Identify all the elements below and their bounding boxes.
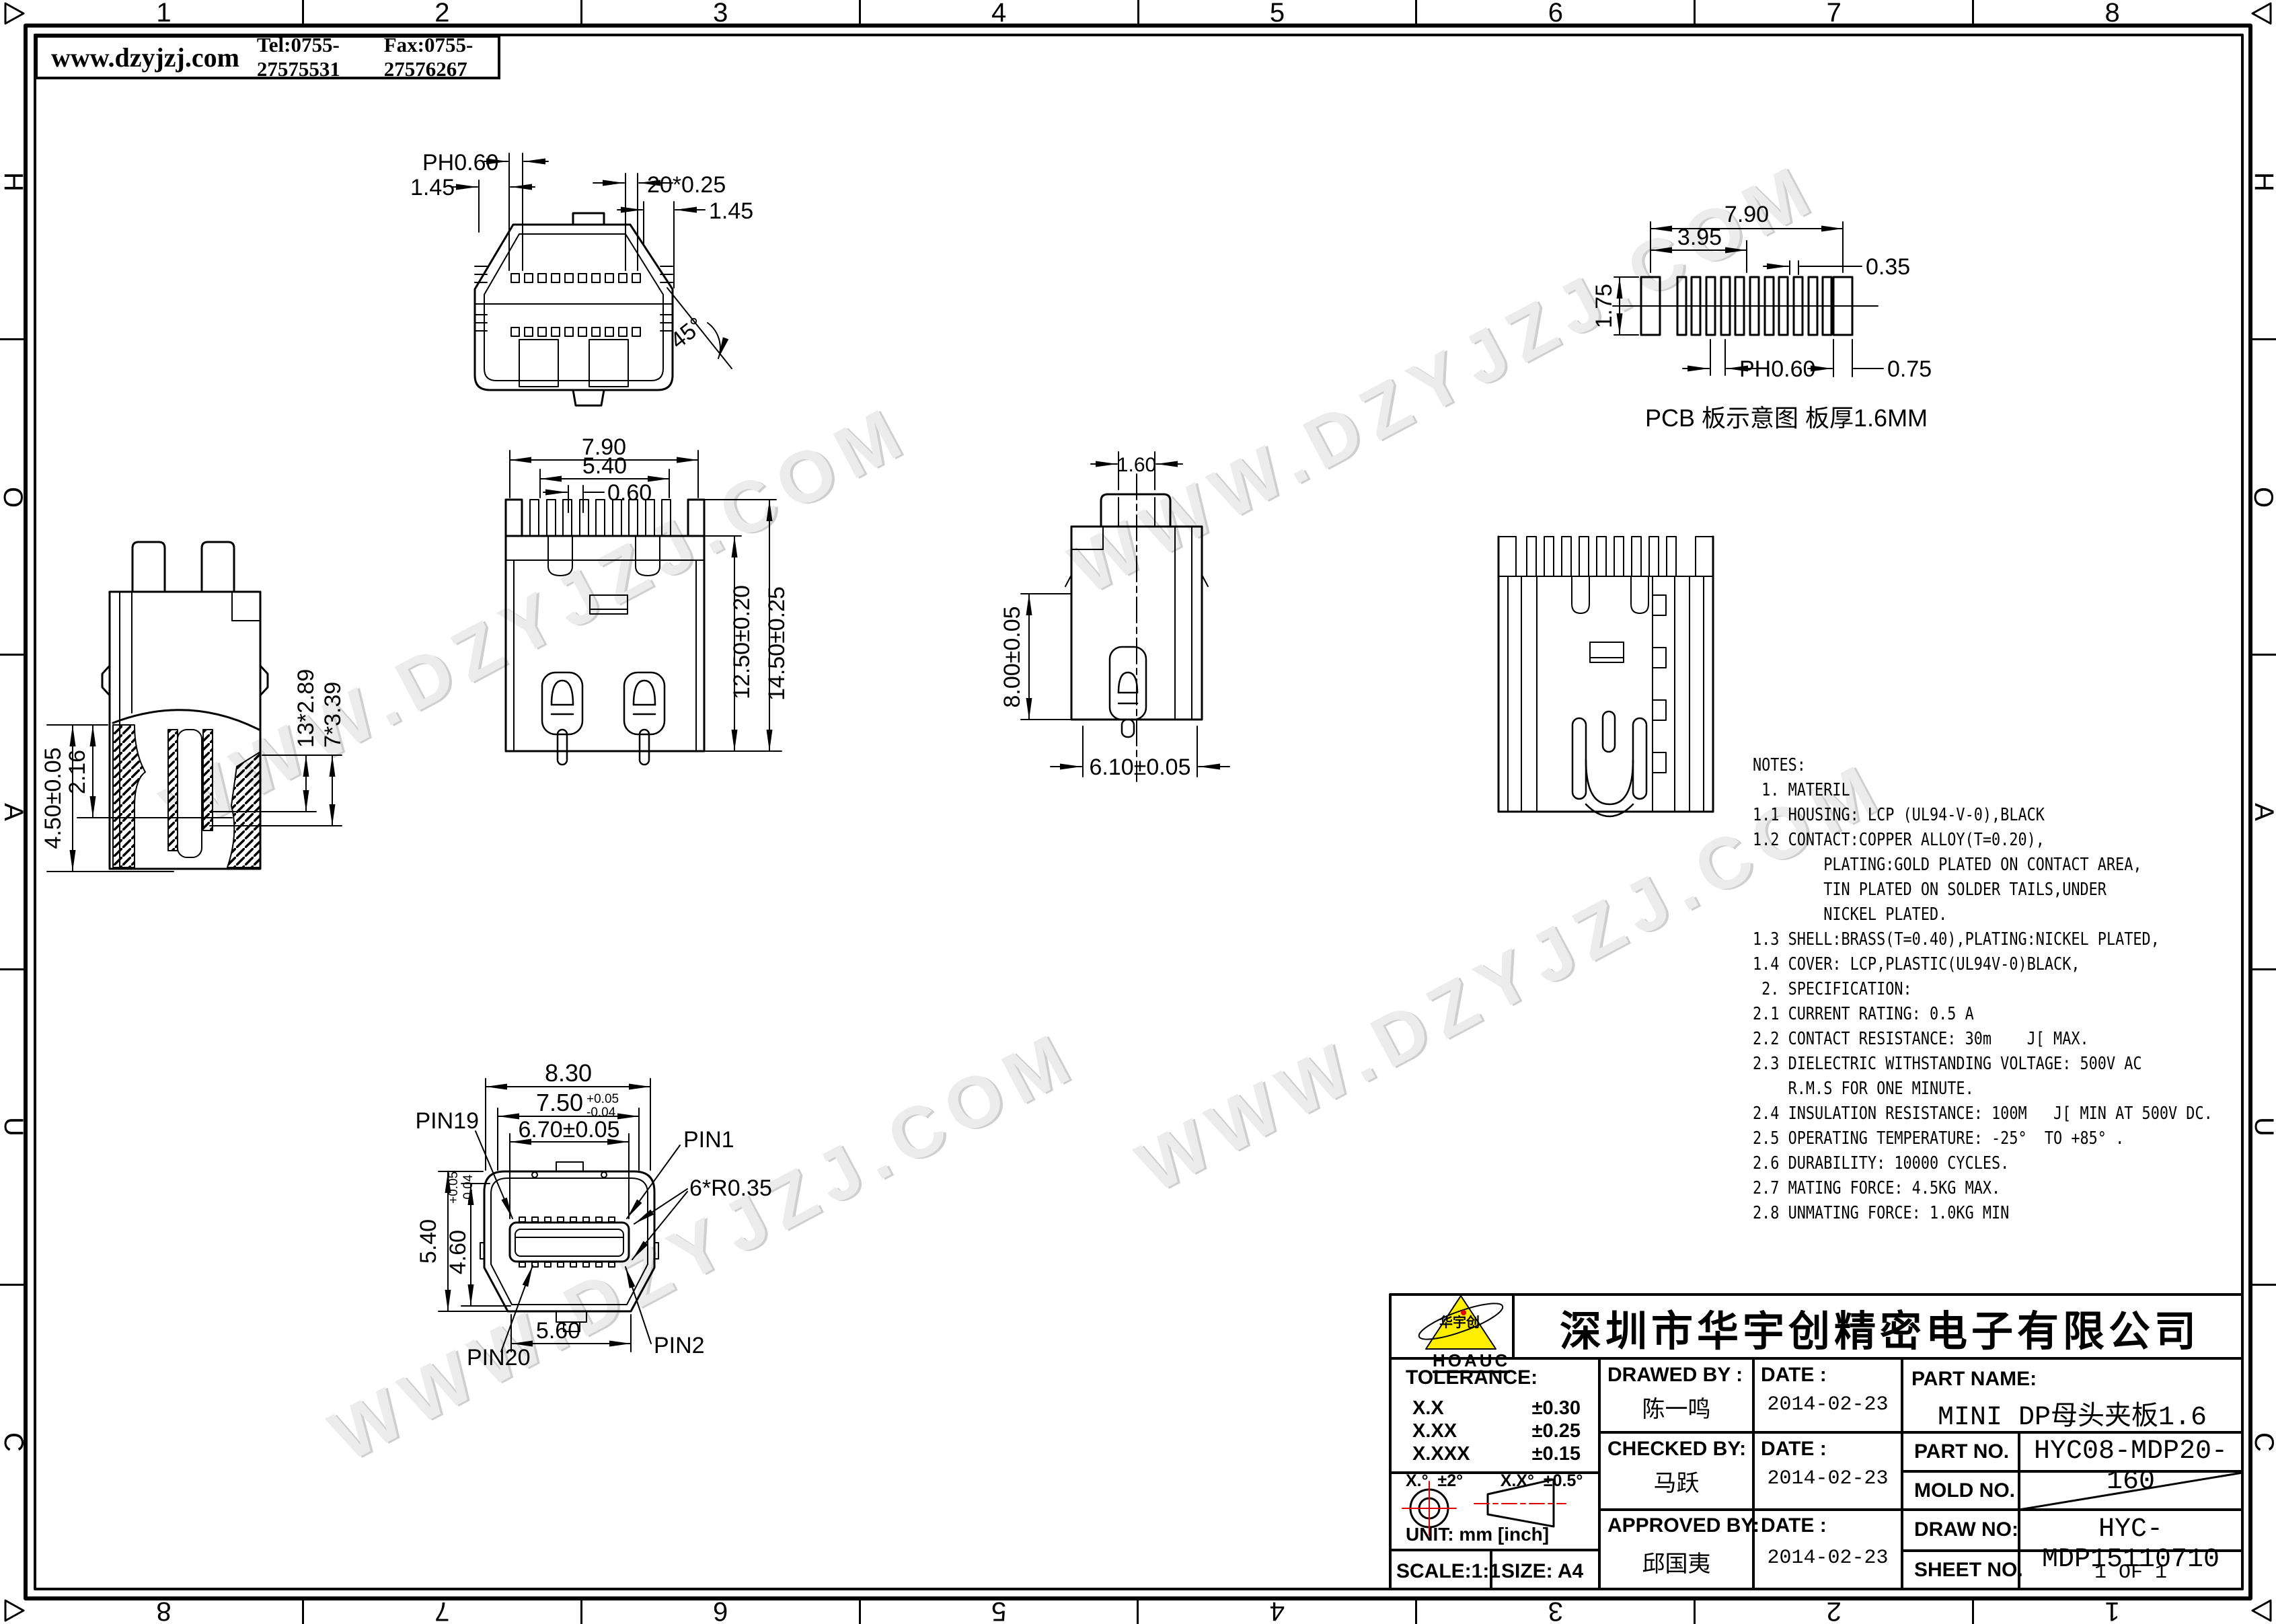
date-value: 2014-02-23 <box>1753 1393 1902 1416</box>
drawed-by-value: 陈一鸣 <box>1599 1391 1753 1424</box>
dim-label: 5.60 <box>536 1318 580 1344</box>
pcb-caption: PCB 板示意图 板厚1.6MM <box>1645 404 1928 432</box>
tol-key: X.XXX <box>1412 1443 1470 1465</box>
logo-text: 华宇创 <box>1439 1311 1480 1331</box>
dim-label: 8.30 <box>545 1059 592 1087</box>
view-pcb <box>1613 222 1883 377</box>
dim-label: 2.16 <box>65 750 90 794</box>
fax-text: Fax:0755-27576267 <box>384 33 498 81</box>
corner-mark-icon <box>2252 1600 2271 1621</box>
tol-val: ±0.30 <box>1532 1397 1581 1420</box>
dim-label: 20*0.25 <box>647 172 726 198</box>
sheet-no-value: 1 OF 1 <box>2019 1561 2242 1584</box>
side-right-dims <box>1021 452 1229 777</box>
part-name-label: PART NAME: <box>1911 1368 2037 1391</box>
tolerance-row: X.X ±0.30 <box>1412 1397 1581 1420</box>
dim-label: 4.60 <box>445 1230 471 1274</box>
checked-by-label: CHECKED BY: <box>1607 1438 1746 1461</box>
size-label: SIZE: A4 <box>1501 1560 1583 1583</box>
dim-label: 5.40 <box>416 1219 441 1264</box>
scale-label: SCALE:1:1 <box>1396 1560 1501 1583</box>
tol-key: X.X <box>1412 1397 1444 1420</box>
date-label: DATE : <box>1761 1514 1827 1537</box>
face-serrations <box>519 1217 615 1267</box>
face-leaders <box>476 1131 687 1352</box>
dim-label: 0.60 <box>607 480 652 506</box>
draw-no-label: DRAW NO: <box>1914 1518 2018 1541</box>
dim-label: 12.50±0.20 <box>729 585 755 699</box>
corner-mark-icon <box>5 3 24 24</box>
pin-label: PIN19 <box>416 1108 480 1134</box>
dim-label: PH0.60 <box>1739 356 1815 382</box>
dim-tolerance: +0.05 <box>586 1092 619 1106</box>
dim-label: 7.50 <box>536 1089 583 1116</box>
dim-label: 4.50±0.05 <box>40 747 66 849</box>
corner-mark-icon <box>5 1600 24 1621</box>
dim-label: 1.60 <box>1117 454 1156 476</box>
dim-label: PH0.60 <box>422 150 498 176</box>
pin-label: PIN2 <box>654 1333 705 1358</box>
tolerance-row: X.XX ±0.25 <box>1412 1420 1581 1442</box>
checked-by-value: 马跃 <box>1599 1465 1753 1498</box>
dim-label: 6.10±0.05 <box>1089 755 1190 780</box>
part-name-value: MINI DP母头夹板1.6 <box>1902 1393 2242 1433</box>
dim-label: 6.70±0.05 <box>518 1117 619 1143</box>
mold-no-label: MOLD NO. <box>1914 1479 2015 1502</box>
top-view-pads <box>511 274 640 336</box>
date-value: 2014-02-23 <box>1753 1467 1902 1490</box>
view-rear <box>1499 537 1713 816</box>
part-no-value: HYC08-MDP20-160 <box>2019 1436 2242 1497</box>
dim-label: 7*3.39 <box>320 682 346 748</box>
dim-label: 6*R0.35 <box>689 1175 772 1201</box>
date-label: DATE : <box>1761 1364 1827 1387</box>
dim-label: 5.40 <box>582 453 627 479</box>
notes-block: NOTES: 1. MATERIL 1.1 HOUSING: LCP (UL94… <box>1753 753 2213 1226</box>
tol-key: X.XX <box>1412 1420 1457 1442</box>
company-name: 深圳市华宇创精密电子有限公司 <box>1527 1301 2233 1354</box>
tel-text: Tel:0755-27575531 <box>257 33 367 81</box>
tolerance-row: X.XXX ±0.15 <box>1412 1443 1581 1465</box>
dimension-labels: PH0.60 1.45 20*0.25 1.45 45° 7.90 3.95 1… <box>40 150 1932 1370</box>
dim-label: 13*2.89 <box>293 669 319 748</box>
dim-label: 7.90 <box>1724 202 1769 227</box>
unit-label: UNIT: mm [inch] <box>1406 1524 1549 1545</box>
approved-by-label: APPROVED BY: <box>1607 1514 1759 1537</box>
website-text: www.dzyjzj.com <box>51 42 239 73</box>
dim-label: 1.45 <box>709 198 753 224</box>
pin-label: PIN20 <box>467 1345 531 1370</box>
dim-label: 0.35 <box>1866 254 1910 280</box>
dim-tolerance: -0.04 <box>461 1174 476 1204</box>
dim-label: 0.75 <box>1887 356 1932 382</box>
header-contact-box: www.dzyjzj.com Tel:0755-27575531 Fax:075… <box>35 35 500 79</box>
rear-latch <box>1572 711 1646 816</box>
dim-label: 3.95 <box>1677 225 1722 250</box>
view-side-right <box>1021 452 1229 781</box>
side-right-latch <box>1110 647 1146 737</box>
tolerance-angles: X.° ±2° X.X° ±0.5° <box>1406 1471 1594 1491</box>
date-label: DATE : <box>1761 1438 1827 1461</box>
dim-label: 8.00±0.05 <box>999 606 1025 707</box>
dim-label: 14.50±0.25 <box>764 586 790 701</box>
drawing-sheet: WWW.DZYJZJ.COM WWW.DZYJZJ.COM WWW.DZYJZJ… <box>0 0 2276 1624</box>
tol-val: ±0.25 <box>1532 1420 1581 1442</box>
sheet-no-label: SHEET NO. <box>1914 1559 2023 1582</box>
dim-tolerance: +0.05 <box>447 1171 461 1204</box>
rear-teeth <box>1527 537 1676 576</box>
dim-label: 1.45 <box>410 175 455 200</box>
approved-by-value: 邱国夷 <box>1599 1545 1753 1578</box>
corner-mark-icon <box>2252 3 2271 24</box>
pin-label: PIN1 <box>683 1127 734 1153</box>
drawed-by-label: DRAWED BY : <box>1607 1364 1743 1387</box>
date-value: 2014-02-23 <box>1753 1547 1902 1570</box>
dim-label: 1.75 <box>1591 284 1617 328</box>
pcb-dims <box>1614 222 1883 377</box>
tolerance-label: TOLERANCE: <box>1406 1366 1538 1389</box>
part-no-label: PART NO. <box>1914 1440 2009 1463</box>
rear-walls <box>1508 576 1704 812</box>
tol-val: ±0.15 <box>1532 1443 1581 1465</box>
